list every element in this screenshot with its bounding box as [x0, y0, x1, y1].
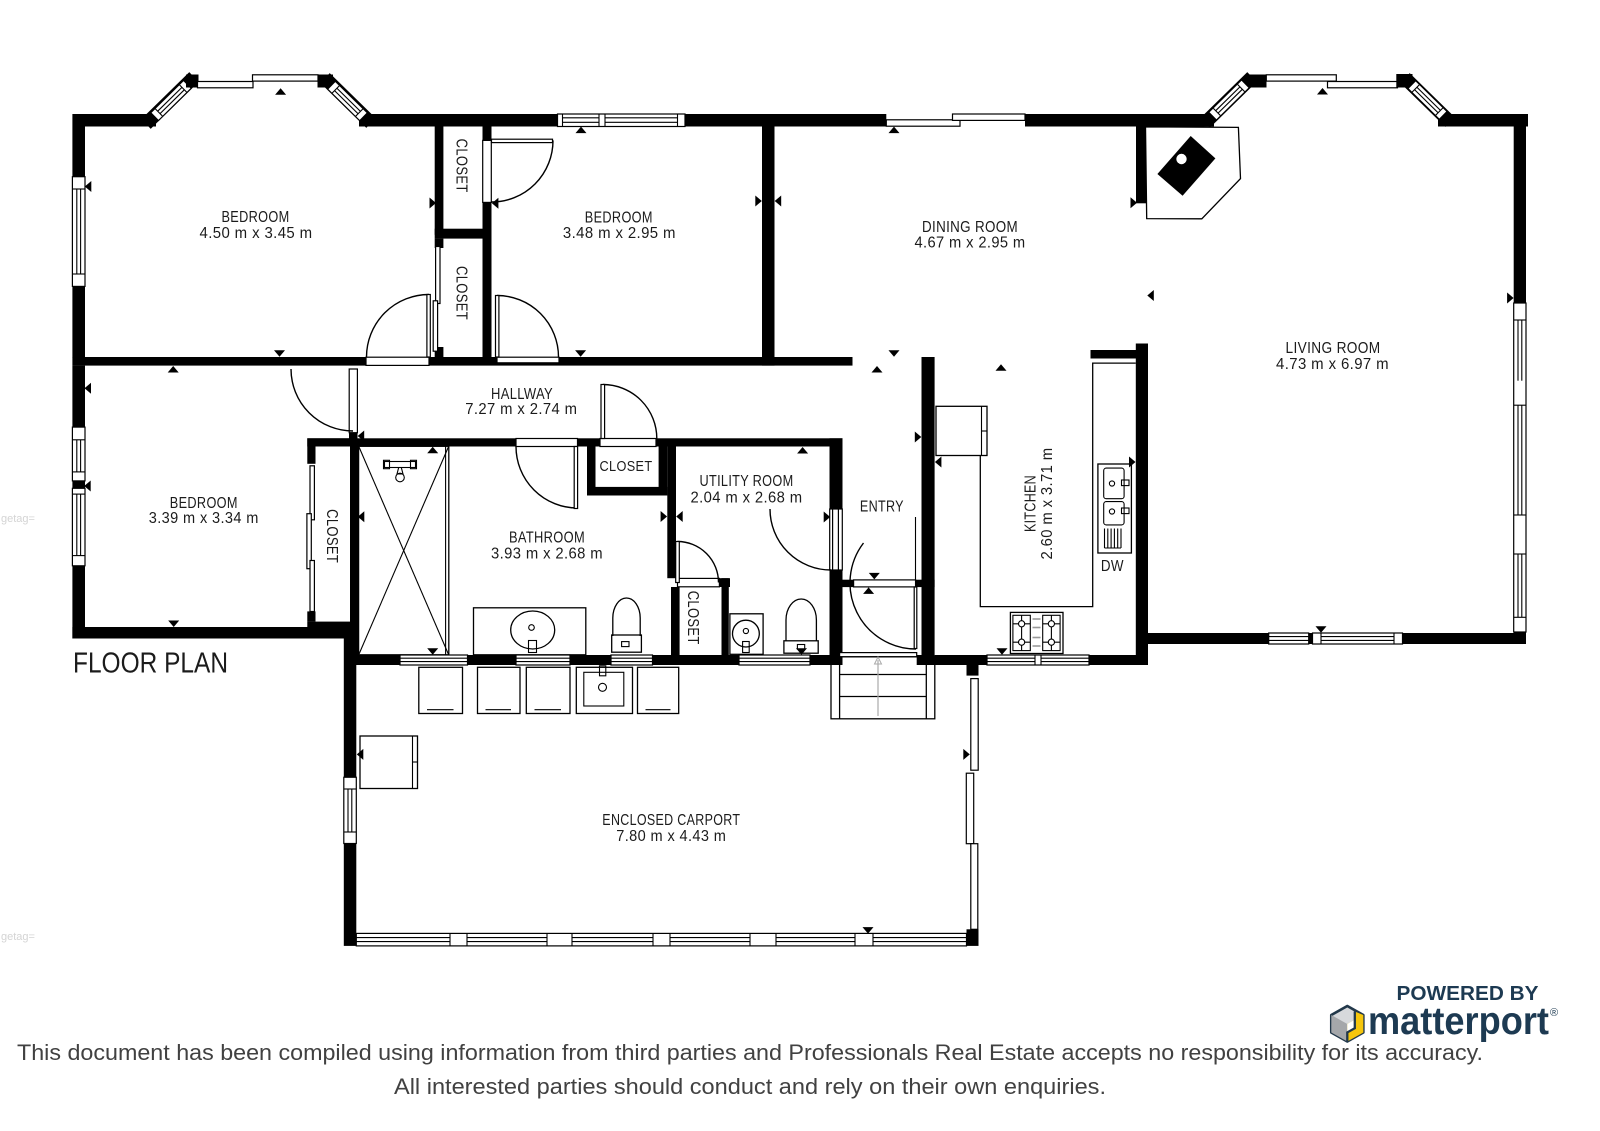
svg-text:7.27 m x 2.74 m: 7.27 m x 2.74 m	[465, 401, 577, 418]
svg-text:CLOSET: CLOSET	[323, 509, 340, 563]
svg-text:KITCHEN: KITCHEN	[1023, 475, 1040, 532]
svg-text:2.60 m x 3.71 m: 2.60 m x 3.71 m	[1039, 448, 1056, 560]
svg-text:BEDROOM: BEDROOM	[222, 209, 290, 226]
svg-text:This document has been compile: This document has been compiled using in…	[17, 1040, 1483, 1065]
svg-text:getag=: getag=	[1, 513, 35, 525]
svg-text:DW: DW	[1101, 558, 1124, 575]
svg-text:3.48 m x 2.95 m: 3.48 m x 2.95 m	[563, 225, 676, 242]
svg-text:matterport: matterport	[1368, 1000, 1549, 1043]
svg-text:ENTRY: ENTRY	[860, 499, 904, 516]
svg-text:CLOSET: CLOSET	[453, 266, 470, 320]
svg-text:BATHROOM: BATHROOM	[509, 530, 585, 547]
svg-text:getag=: getag=	[1, 931, 35, 943]
svg-text:BEDROOM: BEDROOM	[585, 210, 653, 227]
svg-text:ENCLOSED CARPORT: ENCLOSED CARPORT	[602, 812, 740, 829]
svg-text:All interested parties should: All interested parties should conduct an…	[394, 1074, 1106, 1099]
svg-text:DINING ROOM: DINING ROOM	[922, 219, 1018, 236]
svg-text:CLOSET: CLOSET	[684, 591, 701, 645]
svg-text:4.67 m x 2.95 m: 4.67 m x 2.95 m	[915, 235, 1026, 252]
svg-text:CLOSET: CLOSET	[600, 459, 653, 475]
svg-text:7.80 m x 4.43 m: 7.80 m x 4.43 m	[616, 828, 726, 845]
svg-text:UTILITY ROOM: UTILITY ROOM	[700, 473, 794, 490]
svg-text:CLOSET: CLOSET	[453, 139, 470, 193]
svg-text:4.50 m x 3.45 m: 4.50 m x 3.45 m	[200, 225, 313, 242]
svg-text:3.93 m x 2.68 m: 3.93 m x 2.68 m	[491, 546, 603, 563]
svg-text:3.39 m x 3.34 m: 3.39 m x 3.34 m	[149, 510, 259, 527]
svg-text:®: ®	[1550, 1007, 1558, 1019]
svg-text:FLOOR PLAN: FLOOR PLAN	[73, 648, 228, 680]
svg-text:LIVING ROOM: LIVING ROOM	[1286, 340, 1381, 357]
svg-text:2.04 m x 2.68 m: 2.04 m x 2.68 m	[691, 490, 803, 507]
svg-text:4.73 m x 6.97 m: 4.73 m x 6.97 m	[1276, 356, 1389, 373]
